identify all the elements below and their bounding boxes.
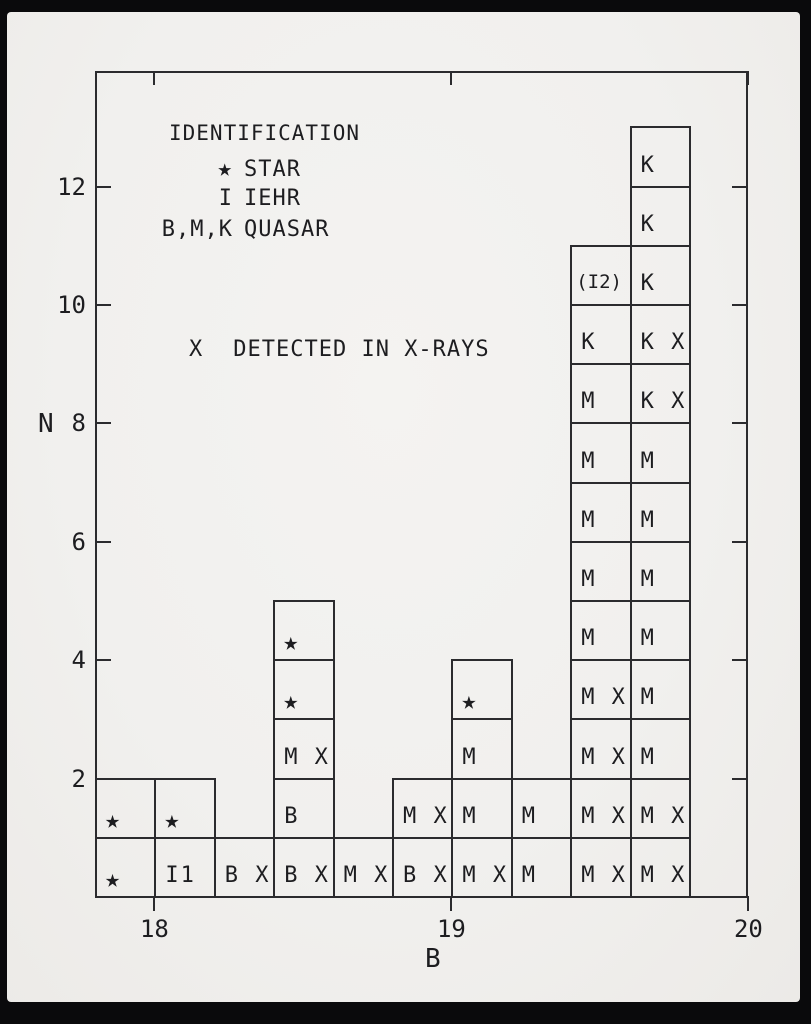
histogram-cell: M X — [570, 778, 631, 839]
xray-note-label: DETECTED IN X-RAYS — [233, 339, 489, 361]
histogram-cell: M — [630, 600, 691, 661]
y-tick-left — [97, 304, 111, 306]
iehr-symbol: I — [142, 188, 233, 210]
x-tick-top — [747, 71, 749, 85]
histogram-cell: K — [630, 126, 691, 187]
histogram-cell: M X — [630, 778, 691, 839]
histogram-cell-star-icon: ★ — [95, 778, 156, 839]
histogram-cell: B X — [273, 837, 334, 898]
y-tick-left — [97, 778, 111, 780]
histogram-cell: M — [511, 778, 572, 839]
y-tick-label: 4 — [38, 648, 86, 672]
y-tick-left — [97, 659, 111, 661]
histogram-cell: M — [630, 541, 691, 602]
y-tick-left — [97, 422, 111, 424]
histogram-cell: K — [630, 186, 691, 247]
y-tick-right — [732, 186, 746, 188]
histogram-cell: M — [451, 778, 512, 839]
histogram-cell: M X — [570, 718, 631, 779]
legend-label-iehr: IEHR — [244, 188, 301, 210]
histogram-cell: K — [570, 304, 631, 365]
histogram-cell: M — [630, 422, 691, 483]
xray-symbol: X — [189, 339, 203, 361]
y-tick-left — [97, 541, 111, 543]
histogram-cell-star-icon: ★ — [273, 659, 334, 720]
histogram-cell-star-icon: ★ — [273, 600, 334, 661]
histogram-cell: M X — [570, 659, 631, 720]
histogram-cell: I1 — [154, 837, 215, 898]
y-tick-label: 12 — [38, 175, 86, 199]
histogram-cell: B — [273, 778, 334, 839]
y-tick-right — [732, 541, 746, 543]
histogram-cell: M X — [333, 837, 394, 898]
x-tick-label: 20 — [716, 917, 780, 941]
x-axis-label: B — [425, 946, 441, 972]
y-tick-right — [732, 304, 746, 306]
legend-entry-star: ★ STAR — [142, 156, 301, 181]
x-tick-top — [153, 71, 155, 85]
y-tick-left — [97, 186, 111, 188]
y-tick-right — [732, 422, 746, 424]
histogram-cell: B X — [392, 837, 453, 898]
histogram-cell-star-icon: ★ — [451, 659, 512, 720]
histogram-cell: M — [630, 482, 691, 543]
y-tick-label: 2 — [38, 767, 86, 791]
histogram-cell: M — [630, 659, 691, 720]
quasar-symbols: B,M,K — [142, 219, 233, 241]
scanned-figure-photo: IDENTIFICATION ★ STAR I IEHR B,M,K QUASA… — [0, 0, 811, 1024]
x-tick-bottom — [747, 896, 749, 911]
histogram-cell: M — [570, 363, 631, 424]
histogram-cell-star-icon: ★ — [154, 778, 215, 839]
histogram-cell: M X — [273, 718, 334, 779]
xray-note: X DETECTED IN X-RAYS — [189, 339, 490, 361]
histogram-cell: M X — [570, 837, 631, 898]
y-tick-label: 8 — [38, 411, 86, 435]
legend-entry-iehr: I IEHR — [142, 188, 301, 210]
y-tick-label: 6 — [38, 530, 86, 554]
legend-label-quasar: QUASAR — [244, 219, 329, 241]
histogram-cell: M — [451, 718, 512, 779]
histogram-cell: M — [570, 482, 631, 543]
histogram-cell: K X — [630, 304, 691, 365]
x-tick-bottom — [450, 896, 452, 911]
histogram-cell: B X — [214, 837, 275, 898]
legend-entry-quasar: B,M,K QUASAR — [142, 219, 329, 241]
histogram-cell: (I2) — [570, 245, 631, 306]
x-tick-label: 18 — [122, 917, 186, 941]
histogram-cell: M — [570, 422, 631, 483]
x-tick-label: 19 — [419, 917, 483, 941]
y-tick-right — [732, 778, 746, 780]
histogram-cell: M X — [392, 778, 453, 839]
x-tick-top — [450, 71, 452, 85]
histogram-cell: M — [630, 718, 691, 779]
y-tick-label: 10 — [38, 293, 86, 317]
legend-label-star: STAR — [244, 159, 301, 181]
histogram-cell: K — [630, 245, 691, 306]
histogram-cell: M — [570, 600, 631, 661]
x-tick-bottom — [153, 896, 155, 911]
histogram-cell-star-icon: ★ — [95, 837, 156, 898]
histogram-cell: M — [511, 837, 572, 898]
histogram-cell: M X — [630, 837, 691, 898]
y-tick-right — [732, 659, 746, 661]
legend-title: IDENTIFICATION — [169, 121, 360, 145]
histogram-cell: M — [570, 541, 631, 602]
histogram-cell: K X — [630, 363, 691, 424]
histogram-cell: M X — [451, 837, 512, 898]
star-icon: ★ — [142, 156, 233, 180]
